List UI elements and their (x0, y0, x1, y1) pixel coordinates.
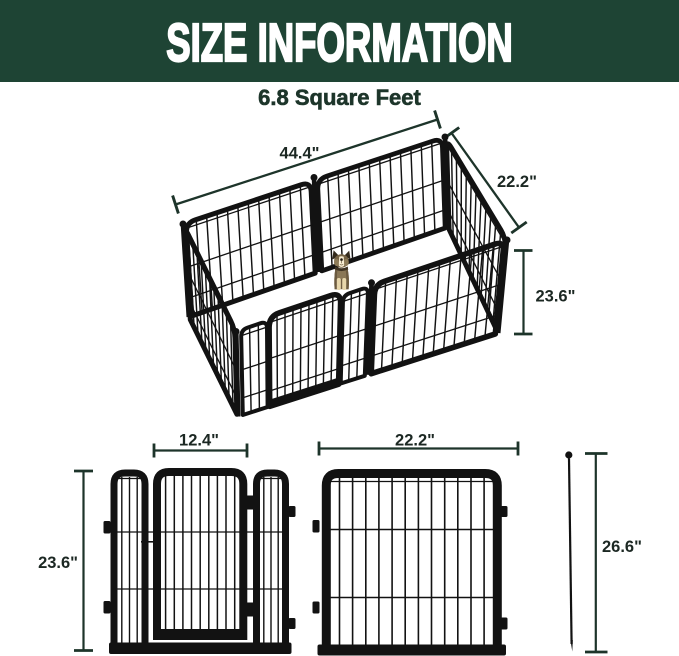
svg-text:23.6": 23.6" (38, 554, 78, 572)
svg-text:23.6": 23.6" (536, 288, 576, 306)
svg-text:44.4": 44.4" (280, 145, 320, 163)
svg-text:22.2": 22.2" (395, 432, 435, 450)
svg-text:22.2": 22.2" (497, 173, 537, 191)
svg-text:26.6": 26.6" (602, 538, 642, 556)
svg-text:12.4": 12.4" (179, 432, 219, 450)
